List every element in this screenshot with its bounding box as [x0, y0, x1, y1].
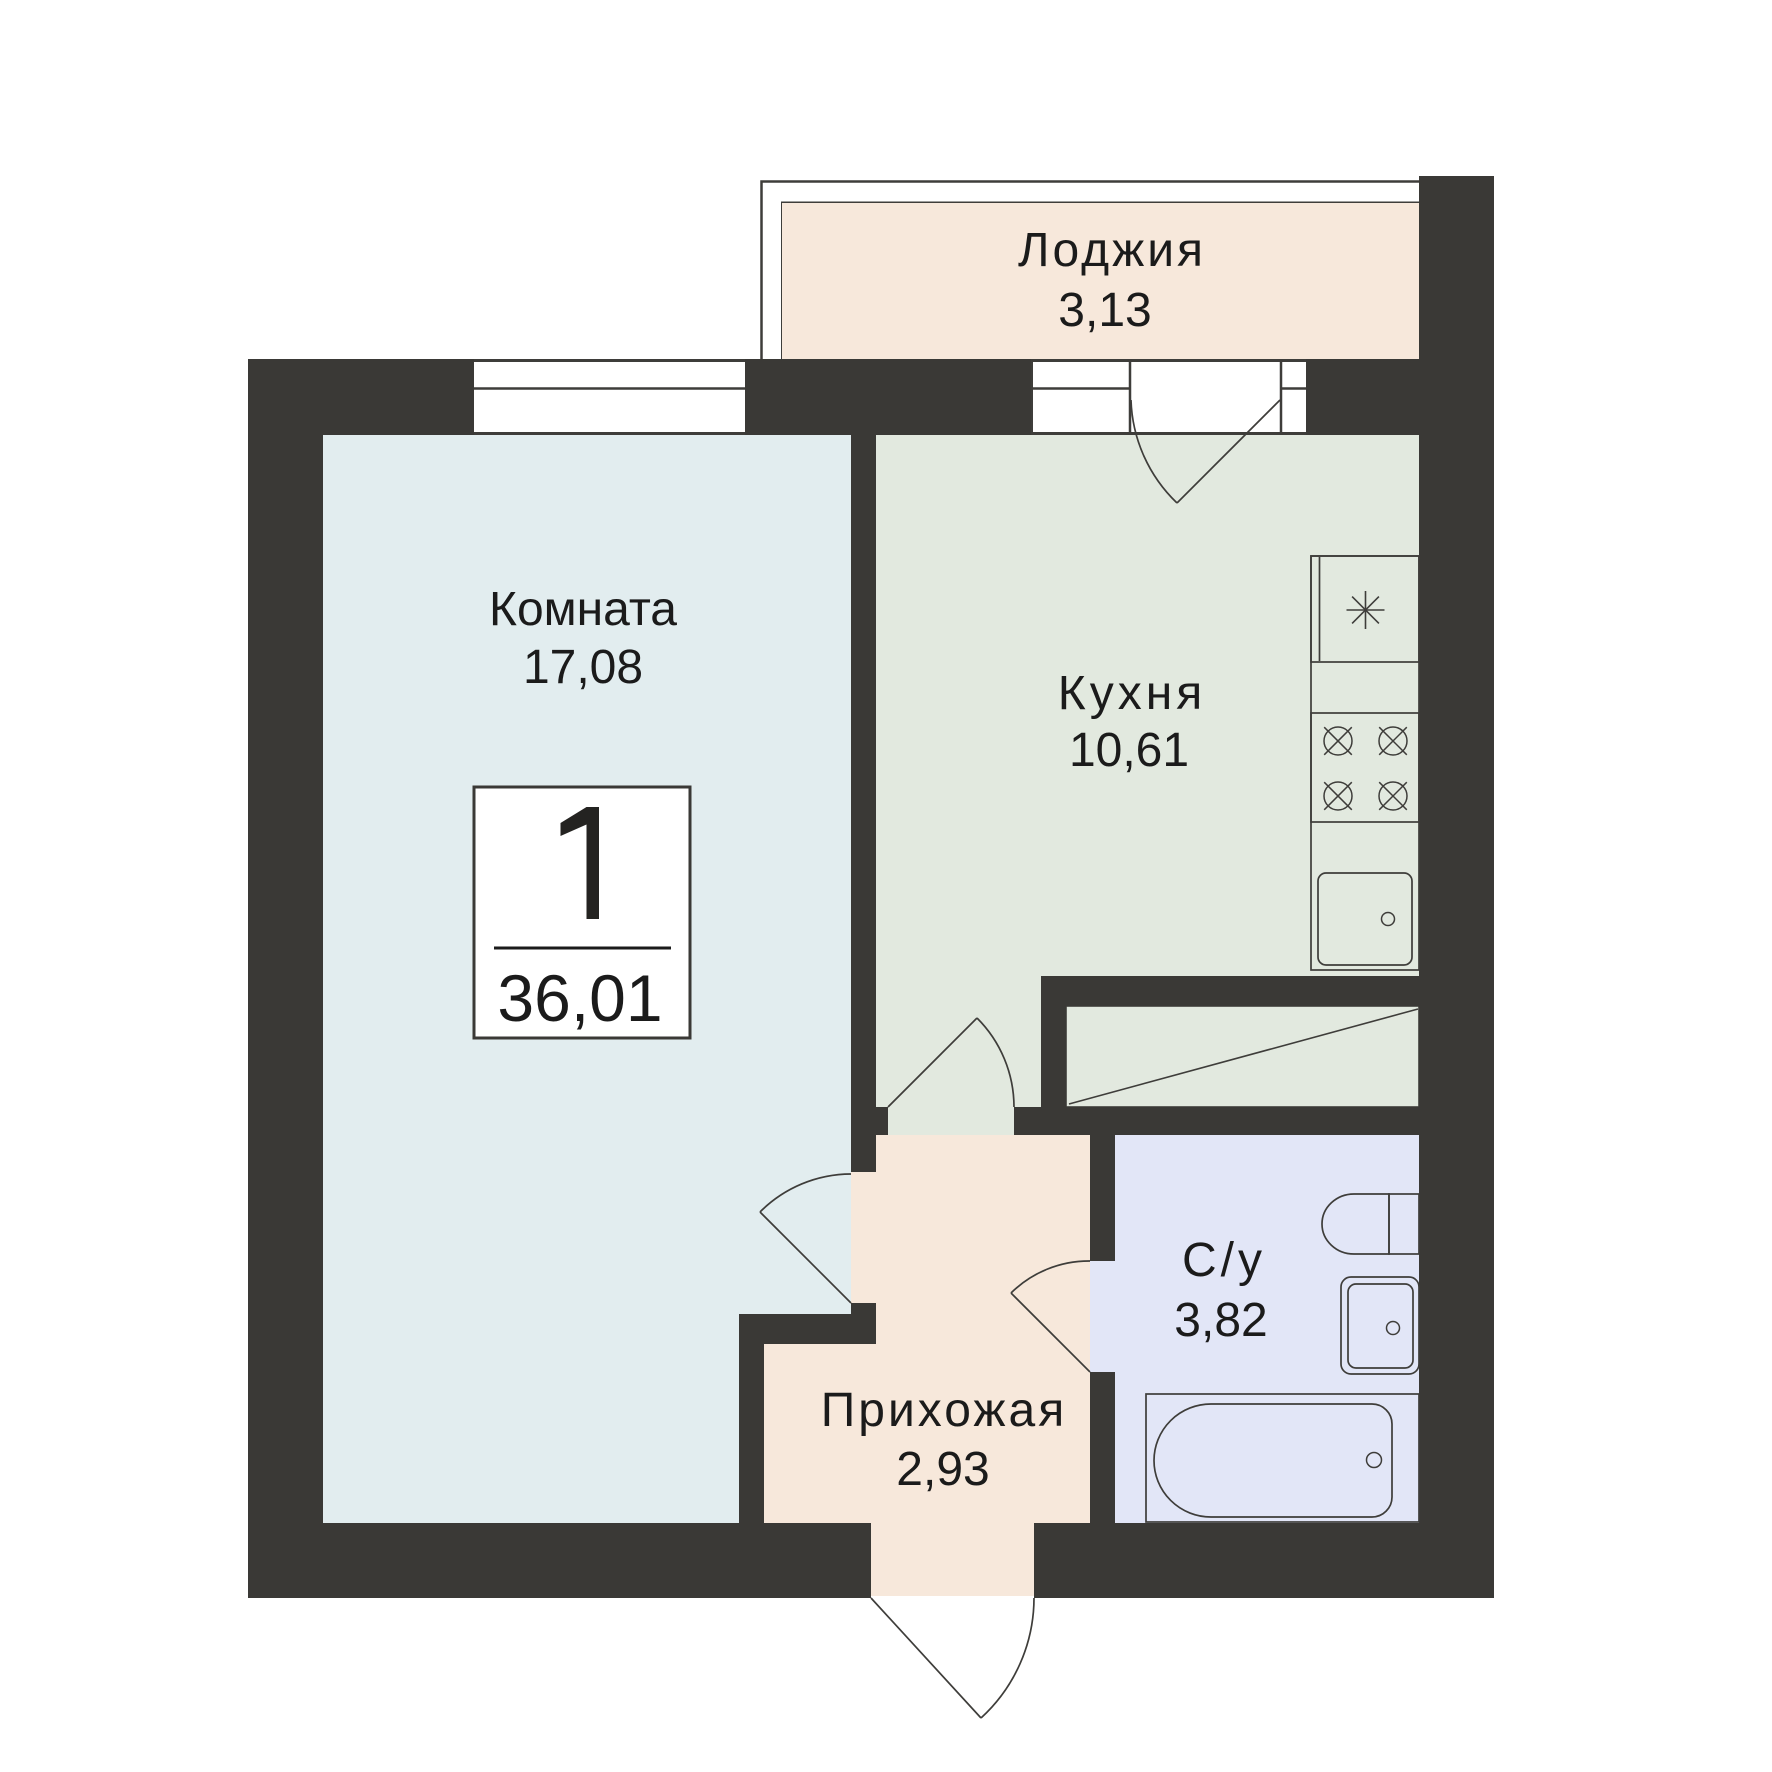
svg-text:Лоджия: Лоджия — [1018, 224, 1206, 277]
svg-text:17,08: 17,08 — [523, 641, 643, 694]
svg-text:Прихожая: Прихожая — [821, 1384, 1067, 1437]
svg-text:10,61: 10,61 — [1069, 724, 1189, 777]
svg-text:С/у: С/у — [1182, 1234, 1266, 1287]
svg-text:3,13: 3,13 — [1058, 284, 1151, 337]
svg-text:Кухня: Кухня — [1058, 667, 1206, 720]
svg-text:3,82: 3,82 — [1174, 1294, 1267, 1347]
svg-text:2,93: 2,93 — [896, 1443, 989, 1496]
svg-text:36,01: 36,01 — [497, 961, 662, 1035]
svg-text:Комната: Комната — [489, 583, 677, 636]
